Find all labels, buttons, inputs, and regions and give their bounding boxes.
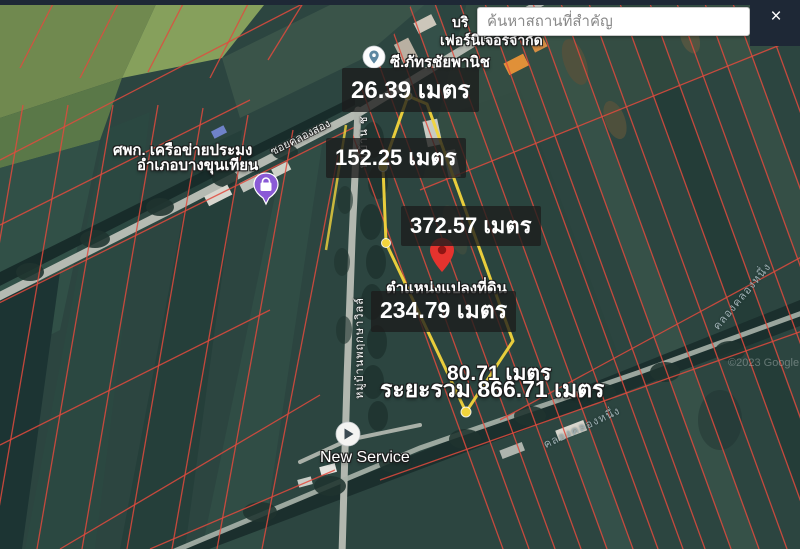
- map-canvas[interactable]: ©2023 Google คลองคลองหนึ่ง คลองคลองหนึ่ง…: [0, 0, 800, 549]
- top-strip: [0, 0, 800, 5]
- close-icon[interactable]: ×: [764, 5, 788, 29]
- new-service-poi-icon: [335, 421, 361, 447]
- search-input[interactable]: [477, 7, 750, 36]
- shop-poi-icon: [362, 45, 386, 69]
- vertex-dot: [461, 407, 471, 417]
- close-panel: ×: [750, 0, 800, 46]
- road-label-village-lower: หมู่บ้านพฤกษาวิลล์: [350, 297, 368, 399]
- new-service-poi[interactable]: [335, 421, 361, 447]
- measure-lower-left-edge: 234.79 เมตร: [371, 291, 516, 332]
- map-watermark: ©2023 Google: [728, 357, 799, 369]
- shopping-pin-icon: [252, 172, 280, 206]
- fishery-poi[interactable]: [252, 172, 280, 206]
- measure-top-edge: 26.39 เมตร: [342, 68, 479, 112]
- shop-poi[interactable]: [362, 45, 386, 69]
- measure-upper-left-edge: 152.25 เมตร: [326, 138, 466, 178]
- measure-right-edge: 372.57 เมตร: [401, 206, 541, 246]
- vertex-dot: [382, 239, 391, 248]
